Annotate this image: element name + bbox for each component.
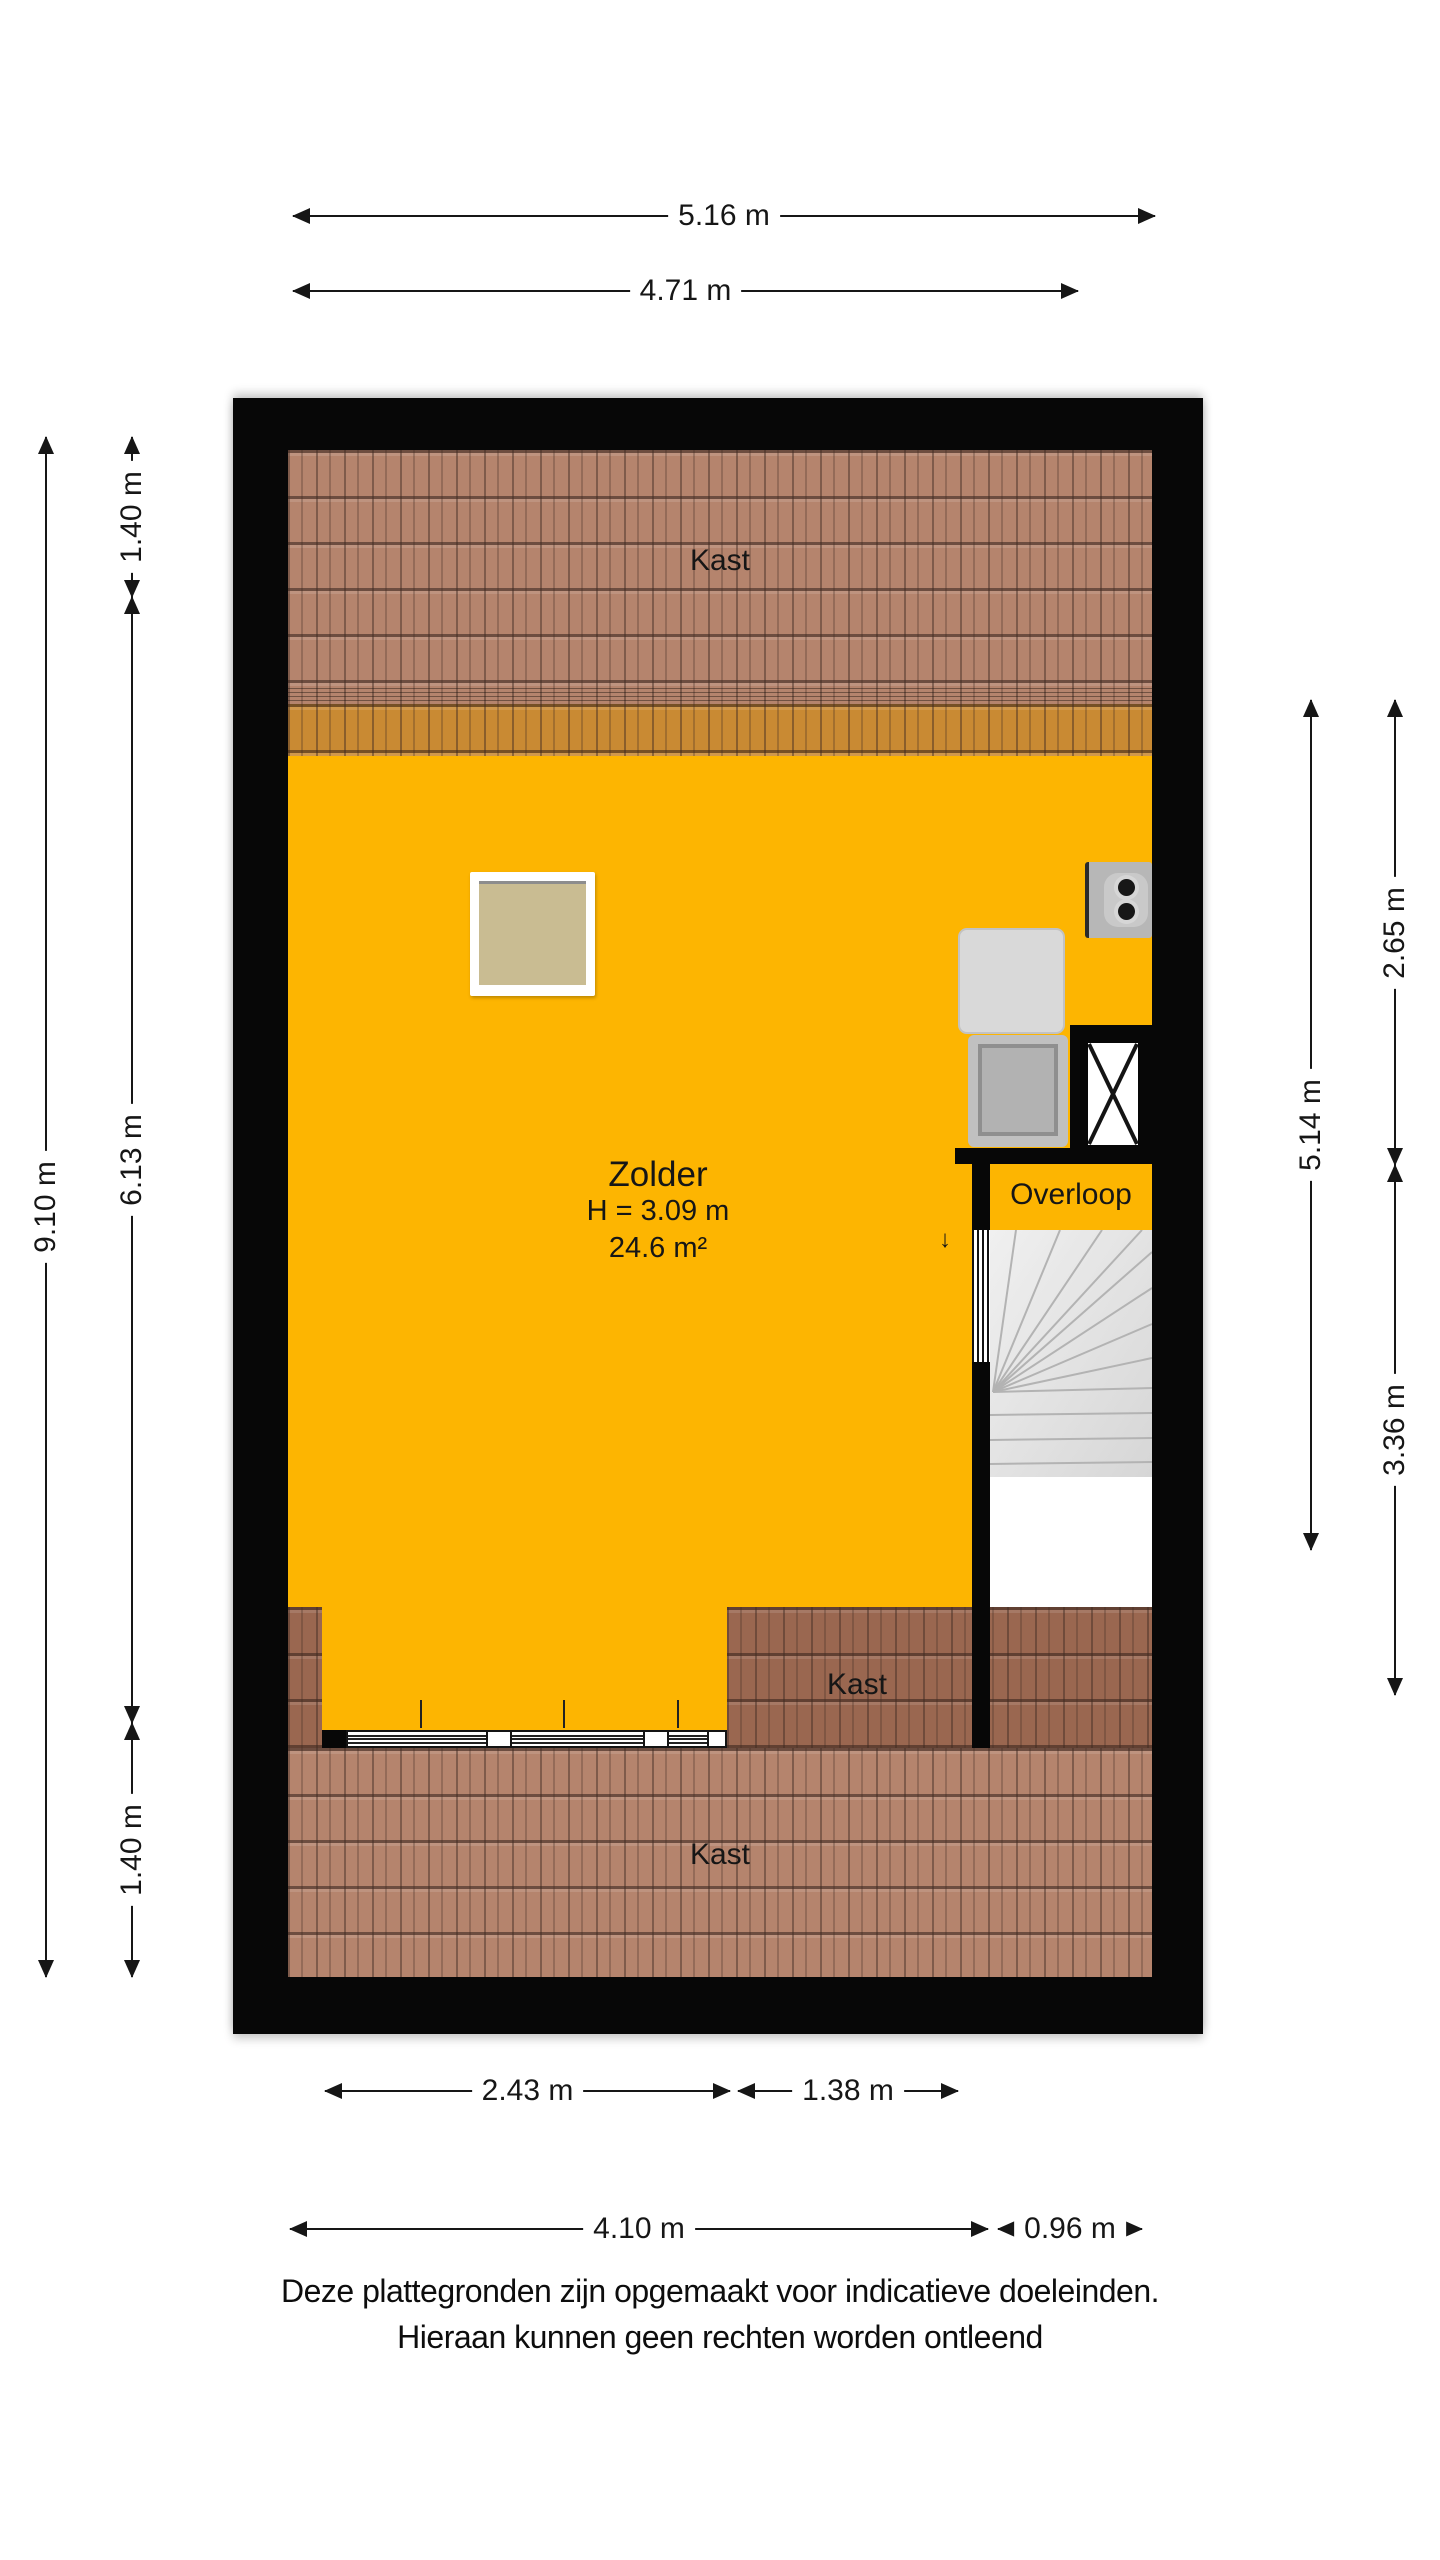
arrow-up-icon: [124, 596, 140, 614]
arrow-up-icon: [1387, 699, 1403, 717]
arrow-right-icon: [1125, 2221, 1143, 2237]
window-tick-3: [677, 1700, 679, 1728]
arrow-up-icon: [124, 436, 140, 454]
dimension-label: 0.96 m: [1014, 2210, 1126, 2248]
dryer: [968, 1035, 1068, 1147]
arrow-left-icon: [289, 2221, 307, 2237]
arrow-up-icon: [1387, 1164, 1403, 1182]
zolder-ceiling-height: H = 3.09 m: [533, 1193, 783, 1230]
dimension-bottom2-right: 0.96 m: [998, 2228, 1142, 2230]
arrow-right-icon: [1138, 208, 1156, 224]
roof-knee-wall-edge: [288, 688, 1152, 702]
boiler-knob-top: [1118, 879, 1135, 896]
room-label-kast-top: Kast: [288, 544, 1152, 578]
arrow-left-icon: [292, 208, 310, 224]
dimension-left-seg-bottom: 1.40 m: [131, 1723, 133, 1977]
zolder-room-label: Zolder H = 3.09 m 24.6 m²: [533, 1156, 783, 1267]
dimension-label: 4.10 m: [583, 2210, 695, 2248]
arrow-right-icon: [713, 2083, 731, 2099]
dimension-label: 4.71 m: [630, 272, 742, 310]
arrow-right-icon: [941, 2083, 959, 2099]
window-tick-2: [563, 1700, 565, 1728]
window-mullion-3: [707, 1730, 727, 1748]
boiler-unit: [1085, 862, 1152, 938]
roof-strip-left: [288, 1607, 322, 1748]
arrow-up-icon: [1303, 699, 1319, 717]
dryer-drum: [978, 1044, 1058, 1136]
zolder-name: Zolder: [533, 1156, 783, 1193]
dimension-label: 6.13 m: [113, 1104, 151, 1216]
arrow-right-icon: [971, 2221, 989, 2237]
boiler-pod: [1104, 873, 1148, 927]
room-label-kast-bottom: Kast: [288, 1838, 1152, 1872]
arrow-up-icon: [124, 1722, 140, 1740]
dimension-label: 1.40 m: [113, 1794, 151, 1906]
arrow-left-icon: [997, 2221, 1015, 2237]
dimension-left-total: 9.10 m: [45, 437, 47, 1977]
arrow-right-icon: [1061, 283, 1079, 299]
dimension-right-inner: 5.14 m: [1310, 700, 1312, 1550]
dimension-bottom1-left: 2.43 m: [325, 2090, 730, 2092]
landing-door: [972, 1230, 990, 1362]
dimension-label: 2.65 m: [1376, 877, 1414, 989]
dimension-bottom2-left: 4.10 m: [290, 2228, 988, 2230]
stair-direction-arrow: ↓: [939, 1226, 951, 1254]
dimension-label: 1.38 m: [792, 2072, 904, 2110]
dimension-label: 5.16 m: [668, 197, 780, 235]
window-mullion-2: [643, 1730, 669, 1748]
skylight-window: [470, 872, 595, 996]
arrow-left-icon: [737, 2083, 755, 2099]
room-label-kast-mid: Kast: [727, 1668, 987, 1702]
shaft-void-x: [1088, 1043, 1138, 1145]
disclaimer-line-1: Deze plattegronden zijn opgemaakt voor i…: [0, 2268, 1440, 2314]
arrow-left-icon: [324, 2083, 342, 2099]
arrow-left-icon: [292, 283, 310, 299]
window-tick-1: [420, 1700, 422, 1728]
boiler-knob-bottom: [1118, 903, 1135, 920]
dimension-right-seg-bottom: 3.36 m: [1394, 1165, 1396, 1695]
arrow-down-icon: [1387, 1678, 1403, 1696]
dimension-label: 5.14 m: [1292, 1069, 1330, 1181]
dimension-label: 3.36 m: [1376, 1374, 1414, 1486]
dormer-window-strip: [346, 1730, 727, 1748]
zolder-floor-area: 24.6 m²: [533, 1230, 783, 1267]
stairwell-void: [990, 1477, 1152, 1607]
washing-machine: [958, 928, 1065, 1034]
window-mullion-1: [486, 1730, 512, 1748]
dimension-left-seg-top: 1.40 m: [131, 437, 133, 597]
dimension-top-total: 5.16 m: [293, 215, 1155, 217]
arrow-down-icon: [124, 1960, 140, 1978]
skylight-pane: [479, 881, 586, 985]
disclaimer-line-2: Hieraan kunnen geen rechten worden ontle…: [0, 2314, 1440, 2360]
window-strip-end-cap: [322, 1730, 346, 1748]
roof-overlap-strip-top: [288, 704, 1152, 756]
arrow-down-icon: [1303, 1533, 1319, 1551]
dimension-top-inner: 4.71 m: [293, 290, 1078, 292]
dimension-bottom1-right: 1.38 m: [738, 2090, 958, 2092]
dimension-label: 2.43 m: [472, 2072, 584, 2110]
dimension-label: 1.40 m: [113, 461, 151, 573]
floor-plan: Kast ↓ Overloop: [233, 398, 1203, 2034]
dimension-left-seg-mid: 6.13 m: [131, 597, 133, 1723]
arrow-down-icon: [38, 1960, 54, 1978]
staircase: [990, 1230, 1152, 1477]
disclaimer: Deze plattegronden zijn opgemaakt voor i…: [0, 2268, 1440, 2360]
room-label-overloop: Overloop: [990, 1178, 1152, 1212]
arrow-up-icon: [38, 436, 54, 454]
dimension-label: 9.10 m: [27, 1151, 65, 1263]
dimension-right-seg-top: 2.65 m: [1394, 700, 1396, 1165]
